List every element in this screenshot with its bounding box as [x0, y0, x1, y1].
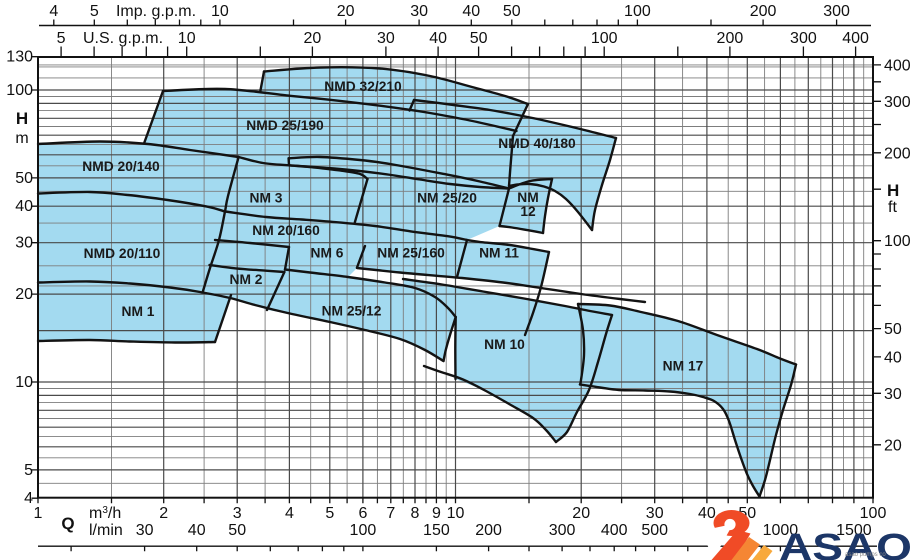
svg-text:50: 50 [503, 3, 521, 20]
svg-text:2: 2 [159, 505, 168, 522]
svg-text:30: 30 [15, 235, 33, 252]
svg-text:30: 30 [646, 505, 664, 522]
svg-text:NM 2: NM 2 [230, 272, 263, 287]
svg-text:l/min: l/min [89, 522, 123, 539]
svg-text:150: 150 [423, 522, 450, 539]
svg-text:Q: Q [61, 514, 74, 533]
svg-text:9: 9 [432, 505, 441, 522]
svg-text:NM 10: NM 10 [484, 337, 525, 352]
svg-text:400: 400 [842, 30, 869, 47]
svg-text:NMD 20/140: NMD 20/140 [82, 159, 160, 174]
svg-text:300: 300 [823, 3, 850, 20]
svg-text:NMD 40/180: NMD 40/180 [498, 136, 576, 151]
svg-text:50: 50 [884, 321, 902, 338]
svg-text:130: 130 [6, 49, 33, 66]
svg-text:400: 400 [884, 57, 911, 74]
svg-text:100: 100 [624, 3, 651, 20]
svg-text:100: 100 [350, 522, 377, 539]
svg-text:H: H [887, 181, 899, 200]
svg-text:4: 4 [24, 490, 33, 507]
svg-text:40: 40 [462, 3, 480, 20]
svg-text:300: 300 [790, 30, 817, 47]
svg-text:NM 20/160: NM 20/160 [252, 223, 320, 238]
svg-text:NMD 25/190: NMD 25/190 [246, 118, 324, 133]
svg-text:4: 4 [285, 505, 294, 522]
svg-text:300: 300 [549, 522, 576, 539]
svg-text:7: 7 [386, 505, 395, 522]
svg-text:5: 5 [24, 462, 33, 479]
svg-text:NM 6: NM 6 [311, 246, 344, 261]
svg-text:12: 12 [520, 204, 536, 219]
svg-text:20: 20 [572, 505, 590, 522]
svg-text:20: 20 [884, 437, 902, 454]
svg-text:100: 100 [6, 82, 33, 99]
svg-text:Imp. g.p.m.: Imp. g.p.m. [116, 3, 196, 20]
svg-text:NM 25/160: NM 25/160 [377, 246, 445, 261]
svg-text:30: 30 [136, 522, 154, 539]
svg-text:NM: NM [517, 190, 538, 205]
svg-text:200: 200 [717, 30, 744, 47]
svg-text:50: 50 [470, 30, 488, 47]
svg-text:10: 10 [211, 3, 229, 20]
svg-text:ft: ft [888, 199, 897, 216]
svg-text:NM 25/12: NM 25/12 [322, 304, 382, 319]
svg-text:8: 8 [411, 505, 420, 522]
svg-text:40: 40 [15, 198, 33, 215]
svg-text:6: 6 [358, 505, 367, 522]
svg-text:200: 200 [475, 522, 502, 539]
svg-text:40: 40 [188, 522, 206, 539]
svg-text:20: 20 [337, 3, 355, 20]
svg-text:20: 20 [15, 286, 33, 303]
svg-text:200: 200 [884, 145, 911, 162]
svg-text:5: 5 [90, 3, 99, 20]
svg-text:50: 50 [15, 170, 33, 187]
svg-text:200: 200 [750, 3, 777, 20]
svg-text:NM 17: NM 17 [663, 359, 704, 374]
svg-text:40: 40 [429, 30, 447, 47]
svg-text:H: H [16, 109, 28, 128]
svg-text:m: m [15, 130, 28, 147]
svg-text:40: 40 [884, 349, 902, 366]
svg-text:NMD 32/210: NMD 32/210 [324, 79, 402, 94]
svg-text:50: 50 [228, 522, 246, 539]
svg-text:NM 1: NM 1 [122, 304, 155, 319]
svg-text:400: 400 [601, 522, 628, 539]
svg-text:4: 4 [49, 3, 58, 20]
svg-text:10: 10 [15, 374, 33, 391]
svg-text:10: 10 [447, 505, 465, 522]
svg-text:NMD 20/110: NMD 20/110 [84, 246, 161, 261]
svg-text:10: 10 [178, 30, 196, 47]
svg-text:100: 100 [860, 505, 887, 522]
svg-text:30: 30 [377, 30, 395, 47]
svg-text:20: 20 [304, 30, 322, 47]
svg-text:100: 100 [884, 233, 911, 250]
svg-text:NM 11: NM 11 [479, 246, 519, 261]
svg-text:NM 3: NM 3 [250, 191, 283, 206]
svg-text:30: 30 [410, 3, 428, 20]
svg-text:5: 5 [57, 30, 66, 47]
svg-text:500: 500 [641, 522, 668, 539]
svg-text:5: 5 [325, 505, 334, 522]
svg-text:asao pumps co: asao pumps co [845, 552, 886, 558]
svg-text:U.S. g.p.m.: U.S. g.p.m. [83, 30, 163, 47]
svg-text:100: 100 [591, 30, 618, 47]
svg-text:1: 1 [34, 505, 43, 522]
svg-text:300: 300 [884, 94, 911, 111]
svg-text:40: 40 [698, 505, 716, 522]
svg-text:NM 25/20: NM 25/20 [417, 191, 477, 206]
svg-text:3: 3 [233, 505, 242, 522]
svg-text:30: 30 [884, 386, 902, 403]
